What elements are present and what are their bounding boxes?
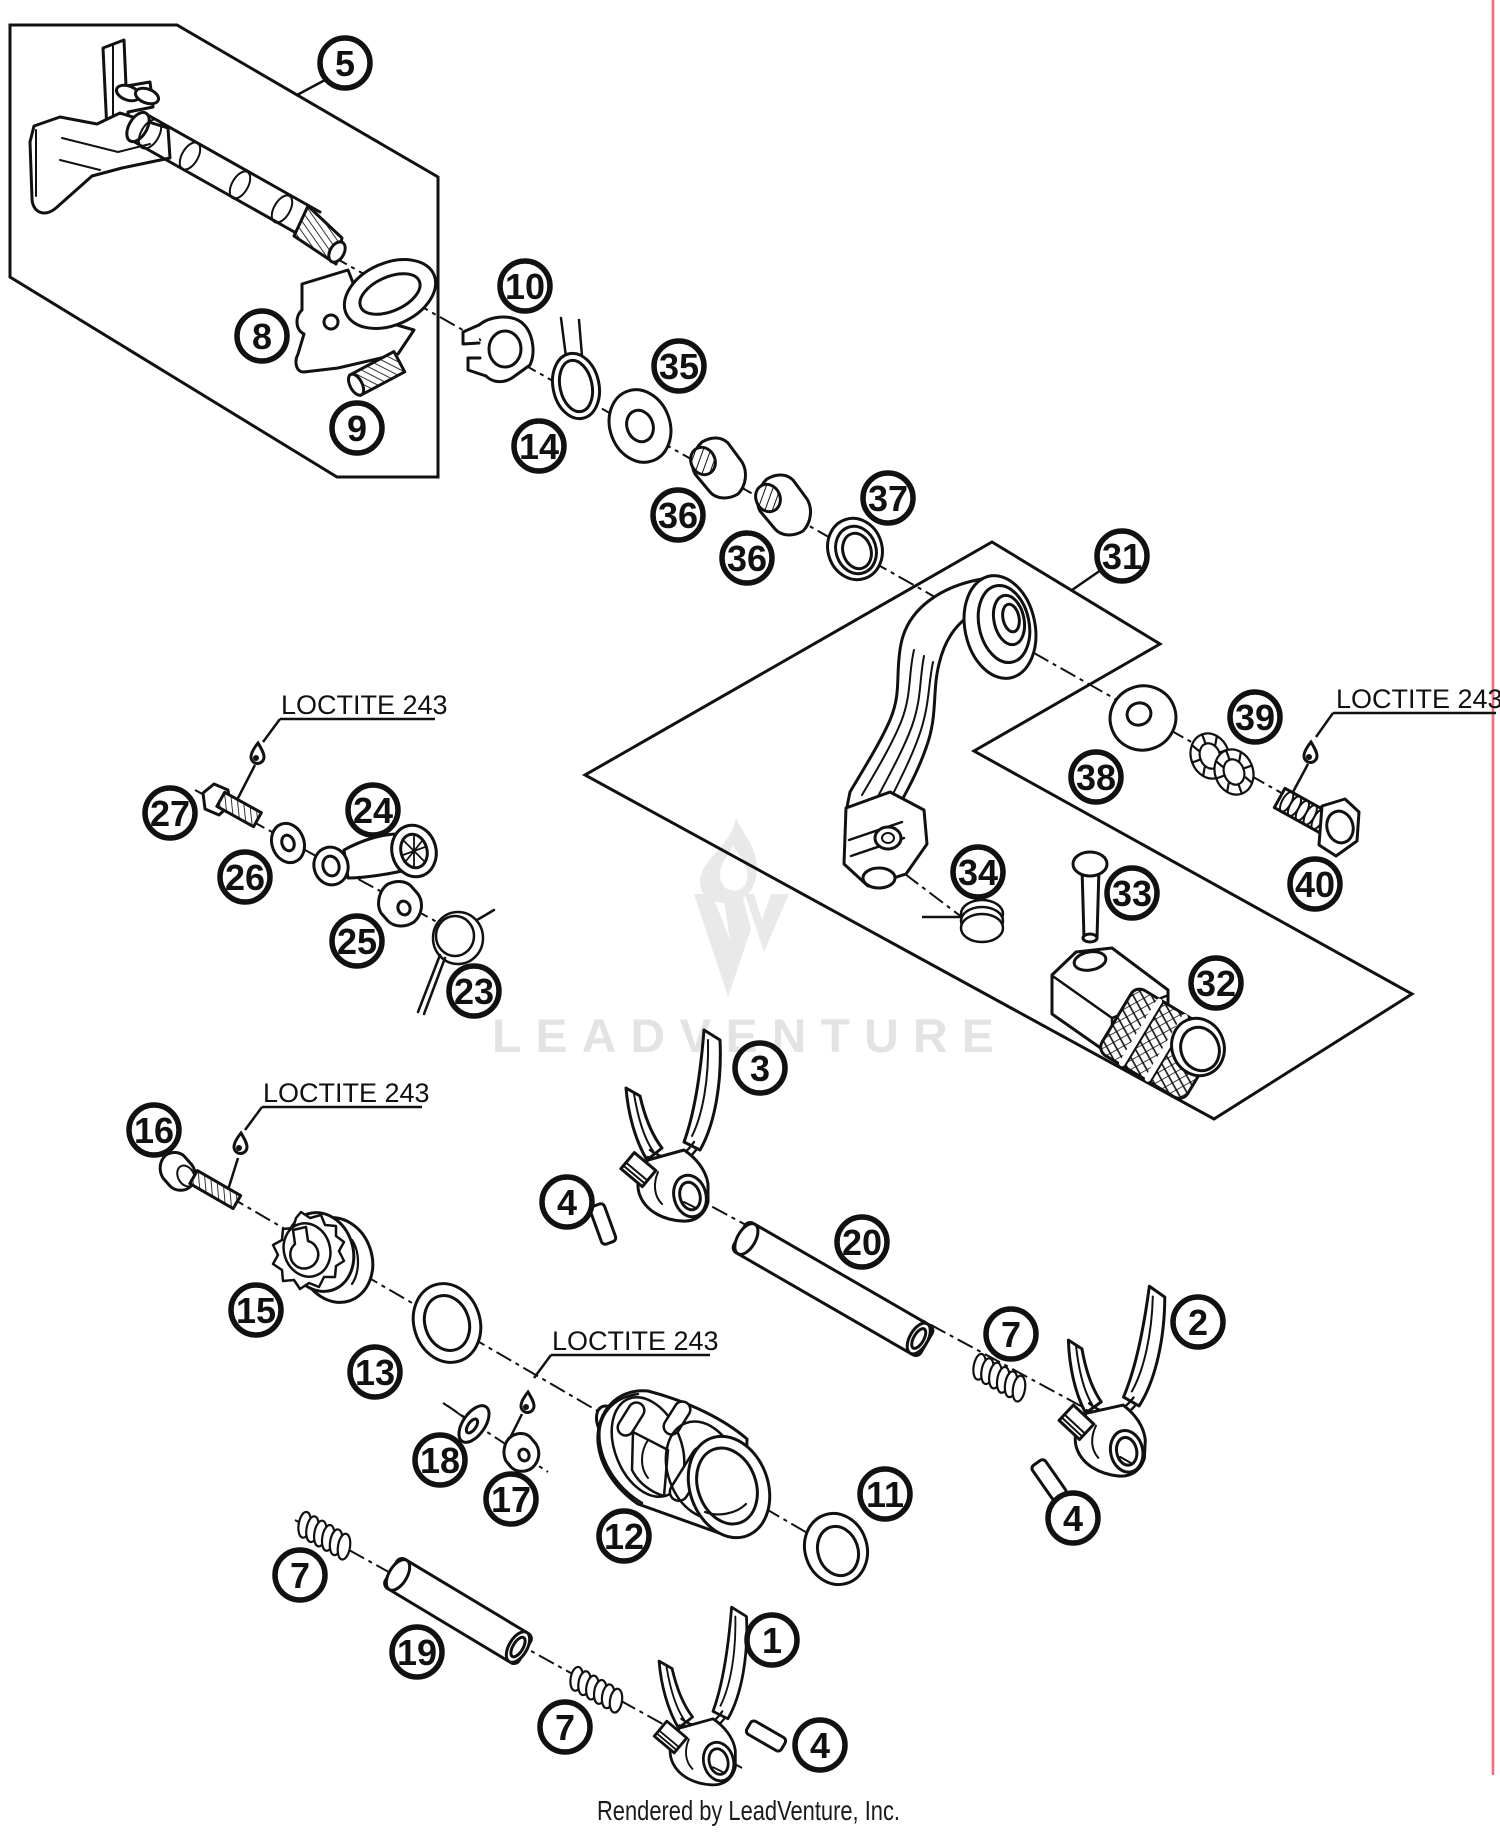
svg-text:25: 25 [337, 921, 377, 962]
svg-text:39: 39 [1235, 697, 1275, 738]
svg-text:40: 40 [1295, 864, 1335, 905]
svg-text:33: 33 [1112, 873, 1152, 914]
svg-text:14: 14 [519, 426, 559, 467]
svg-text:LOCTITE 243: LOCTITE 243 [1336, 684, 1500, 714]
svg-text:4: 4 [557, 1182, 577, 1223]
svg-text:4: 4 [1063, 1498, 1083, 1539]
svg-text:LOCTITE 243: LOCTITE 243 [281, 690, 448, 720]
svg-text:26: 26 [225, 857, 265, 898]
svg-text:7: 7 [290, 1555, 310, 1596]
svg-text:16: 16 [134, 1110, 174, 1151]
svg-text:17: 17 [491, 1479, 531, 1520]
svg-text:34: 34 [958, 852, 998, 893]
svg-text:31: 31 [1102, 536, 1142, 577]
svg-text:32: 32 [1196, 963, 1236, 1004]
svg-text:35: 35 [659, 346, 699, 387]
svg-text:5: 5 [335, 43, 355, 84]
svg-text:7: 7 [555, 1707, 575, 1748]
svg-text:1: 1 [762, 1620, 782, 1661]
svg-text:12: 12 [604, 1516, 644, 1557]
svg-text:2: 2 [1188, 1302, 1208, 1343]
svg-text:LOCTITE 243: LOCTITE 243 [552, 1326, 719, 1356]
svg-text:3: 3 [750, 1048, 770, 1089]
svg-text:38: 38 [1076, 757, 1116, 798]
svg-text:11: 11 [866, 1474, 904, 1515]
svg-text:9: 9 [347, 408, 367, 449]
svg-text:19: 19 [397, 1632, 437, 1673]
svg-text:LOCTITE 243: LOCTITE 243 [263, 1078, 430, 1108]
svg-text:Rendered by LeadVenture, Inc.: Rendered by LeadVenture, Inc. [597, 1795, 900, 1826]
svg-text:18: 18 [420, 1440, 460, 1481]
svg-text:13: 13 [355, 1352, 395, 1393]
svg-text:7: 7 [1001, 1314, 1021, 1355]
svg-text:27: 27 [150, 793, 190, 834]
svg-text:10: 10 [505, 266, 545, 307]
svg-text:24: 24 [353, 790, 393, 831]
svg-text:37: 37 [868, 478, 908, 519]
svg-text:23: 23 [454, 971, 494, 1012]
svg-text:8: 8 [252, 316, 272, 357]
svg-text:36: 36 [658, 495, 698, 536]
svg-text:15: 15 [236, 1290, 276, 1331]
svg-text:4: 4 [810, 1725, 830, 1766]
svg-text:20: 20 [842, 1222, 882, 1263]
svg-text:36: 36 [727, 538, 767, 579]
